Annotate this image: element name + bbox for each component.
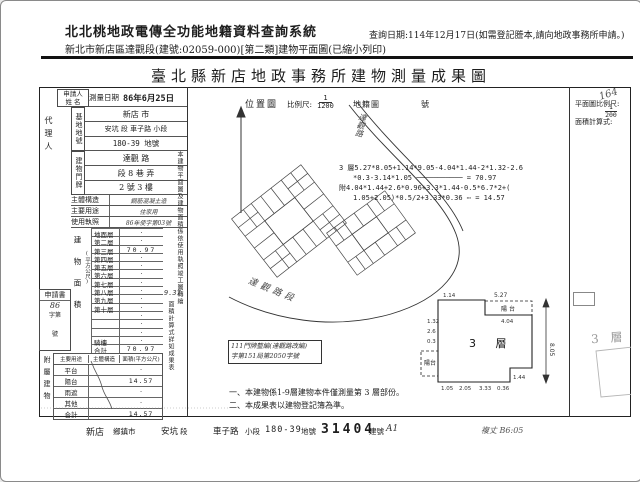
- dim-label: 4.04: [501, 319, 514, 325]
- footer-city-value: 新店: [86, 425, 104, 438]
- footer-subsection-label: 小段: [245, 426, 260, 437]
- footer-building-no: 31404: [321, 422, 375, 437]
- formula-line: 附4.04*1.44+2.6*0.96+3.3*1.44-0.5*6.7*2+(: [339, 183, 565, 193]
- form-title: 臺北縣新店地政事務所建物測量成果圖: [1, 65, 640, 86]
- formula-line: *0.3-3.14*1.05 ─────────── = 70.97: [339, 173, 565, 183]
- area-formula-block: 3 層5.27*8.05+1.14*9.05-4.04*1.44-2*1.32-…: [339, 163, 565, 204]
- survey-sketch: 5.27 1.14 4.04 8.05 1.44 1.32 2.6 0.3 1.…: [39, 87, 631, 417]
- note-2: 二、本成果表以建物登記簿為準。: [229, 400, 349, 411]
- balcony-label: 陽台: [501, 305, 517, 313]
- footer-strip: 新店 鄉鎮市 安坑 段 車子路 小段 180-39 地號 31404 建號 A1…: [39, 422, 631, 446]
- formula-line: 3 層5.27*8.05+1.14*9.05-4.04*1.44-2*1.32-…: [339, 163, 565, 173]
- plan-scale-fraction: 1 200: [605, 104, 617, 118]
- dim-label: 1.05: [441, 386, 454, 392]
- system-title: 北北桃地政電傳全功能地籍資料查詢系統: [65, 21, 317, 40]
- header-divider: [41, 56, 633, 59]
- footer-building-label: 建號: [369, 426, 384, 437]
- footer-parcel-label: 地號: [301, 426, 316, 437]
- footer-subsection-value: 車子路: [213, 425, 239, 437]
- dim-label: 8.05: [548, 343, 555, 357]
- bleedthrough-shape: [596, 347, 631, 397]
- query-date: 查詢日期:114年12月17日(如需登記謄本,請向地政事務所申請。): [369, 28, 625, 41]
- balcony-label: 陽台: [424, 359, 436, 367]
- parcel-cluster-1: [232, 165, 347, 277]
- document-subtitle: 新北市新店區達觀段(建號:02059-000)[第二類]建物平面圖(已縮小列印): [65, 41, 386, 56]
- note-1: 一、本建物係1-9層建物本件僅測量第 3 層部份。: [229, 387, 404, 398]
- north-arrow-icon: [237, 107, 245, 213]
- dim-label: 0.3: [427, 339, 436, 345]
- small-reference-box: [573, 292, 595, 306]
- dim-label: 5.27: [494, 292, 508, 299]
- boxed-note-line2: 字第151局第2050字號: [231, 352, 319, 362]
- footer-section-value: 安坑: [161, 425, 178, 437]
- footer-parcel-value: 180-39: [265, 425, 302, 435]
- dimension-line: [543, 299, 549, 383]
- dim-label: 1.44: [513, 375, 526, 381]
- annex-handwriting-mark: [91, 361, 112, 409]
- footer-city-label: 鄉鎮市: [113, 426, 136, 437]
- document-viewer: 北北桃地政電傳全功能地籍資料查詢系統 新北市新店區達觀段(建號:02059-00…: [0, 0, 640, 482]
- dim-label: 1.32: [427, 319, 439, 325]
- dim-label: 2.05: [459, 386, 472, 392]
- dim-label: 1.14: [443, 293, 456, 299]
- boxed-note-line1: 111門牌整編(達觀路改編): [231, 342, 319, 352]
- floor-plan-label: 3 層: [469, 337, 515, 350]
- handwritten-boxed-note: 111門牌整編(達觀路改編) 字第151局第2050字號: [228, 340, 322, 364]
- dim-label: 3.33: [479, 386, 492, 392]
- formula-line: 1.05+2.05)*0.5/2+3.33*0.36 ⋯ = 14.57: [339, 193, 565, 203]
- footer-building-suffix: A1: [386, 424, 398, 434]
- footer-section-label: 段: [180, 426, 188, 437]
- area-formula-label: 面積計算式:: [575, 117, 612, 127]
- dim-label: 2.6: [427, 329, 436, 335]
- dim-label: 0.36: [497, 386, 510, 392]
- footer-check-note: 複丈 B6:05: [481, 425, 523, 436]
- bleedthrough-floor-label: 3 層: [590, 328, 627, 347]
